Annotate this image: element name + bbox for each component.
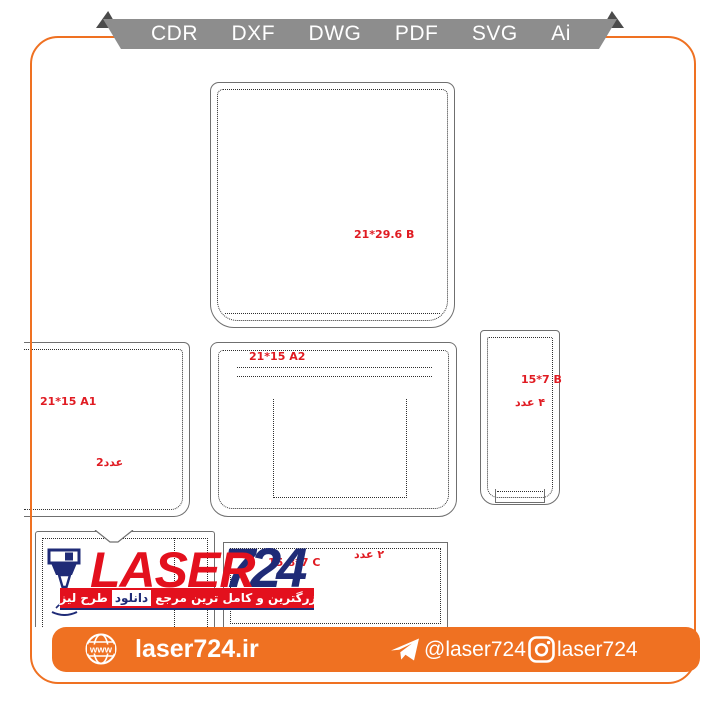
pocket-stitch-line: [273, 399, 407, 498]
stitch-line-bottom: [225, 313, 440, 314]
instagram-icon[interactable]: [528, 636, 555, 663]
footer-bar: www laser724.ir @laser724 laser724: [52, 627, 700, 672]
stitch-line: [218, 350, 449, 509]
stitch-line: [24, 349, 183, 510]
website-link[interactable]: laser724.ir: [135, 635, 259, 664]
logo-wordmark: LASER: [90, 546, 254, 594]
format-tab-dwg[interactable]: DWG: [309, 19, 362, 49]
telegram-handle[interactable]: @laser724: [424, 638, 526, 662]
piece-quantity: ۲ عدد: [354, 548, 384, 561]
format-tab-dxf[interactable]: DXF: [232, 19, 276, 49]
stitch-rows-top: [237, 367, 432, 377]
laser724-logo: 724 LASER بزرگترین و کامل ترین مرجع دانل…: [38, 546, 323, 618]
globe-www-icon: www: [84, 632, 118, 666]
telegram-icon[interactable]: [390, 636, 420, 663]
piece-label: 15*7 B: [521, 373, 562, 386]
piece-label: 21*15 A2: [249, 350, 305, 363]
format-ribbon: CDR DXF DWG PDF SVG Ai: [103, 19, 617, 49]
format-tab-ai[interactable]: Ai: [551, 19, 571, 49]
format-tab-cdr[interactable]: CDR: [151, 19, 198, 49]
format-tab-svg[interactable]: SVG: [472, 19, 518, 49]
stitch-line: [217, 89, 448, 321]
piece-quantity: ۴ عدد: [515, 396, 545, 409]
pattern-piece-flap-b: 21*29.6 B: [210, 82, 455, 328]
page: CDR DXF DWG PDF SVG Ai 21*29.6 B 21*15 A…: [0, 0, 720, 720]
globe-www-text: www: [89, 645, 113, 656]
pattern-piece-a2: 21*15 A2: [210, 342, 457, 517]
slot-cutout: [495, 489, 545, 503]
piece-label: 21*29.6 B: [354, 228, 414, 241]
piece-label: 21*15 A1: [40, 395, 96, 408]
piece-quantity: 2عدد: [96, 456, 123, 469]
instagram-handle[interactable]: laser724: [557, 638, 638, 662]
pattern-piece-b: 15*7 B ۴ عدد: [480, 330, 560, 505]
format-tab-pdf[interactable]: PDF: [395, 19, 439, 49]
pattern-piece-a1: 21*15 A1 2عدد: [24, 342, 190, 517]
stitch-line: [487, 337, 553, 498]
